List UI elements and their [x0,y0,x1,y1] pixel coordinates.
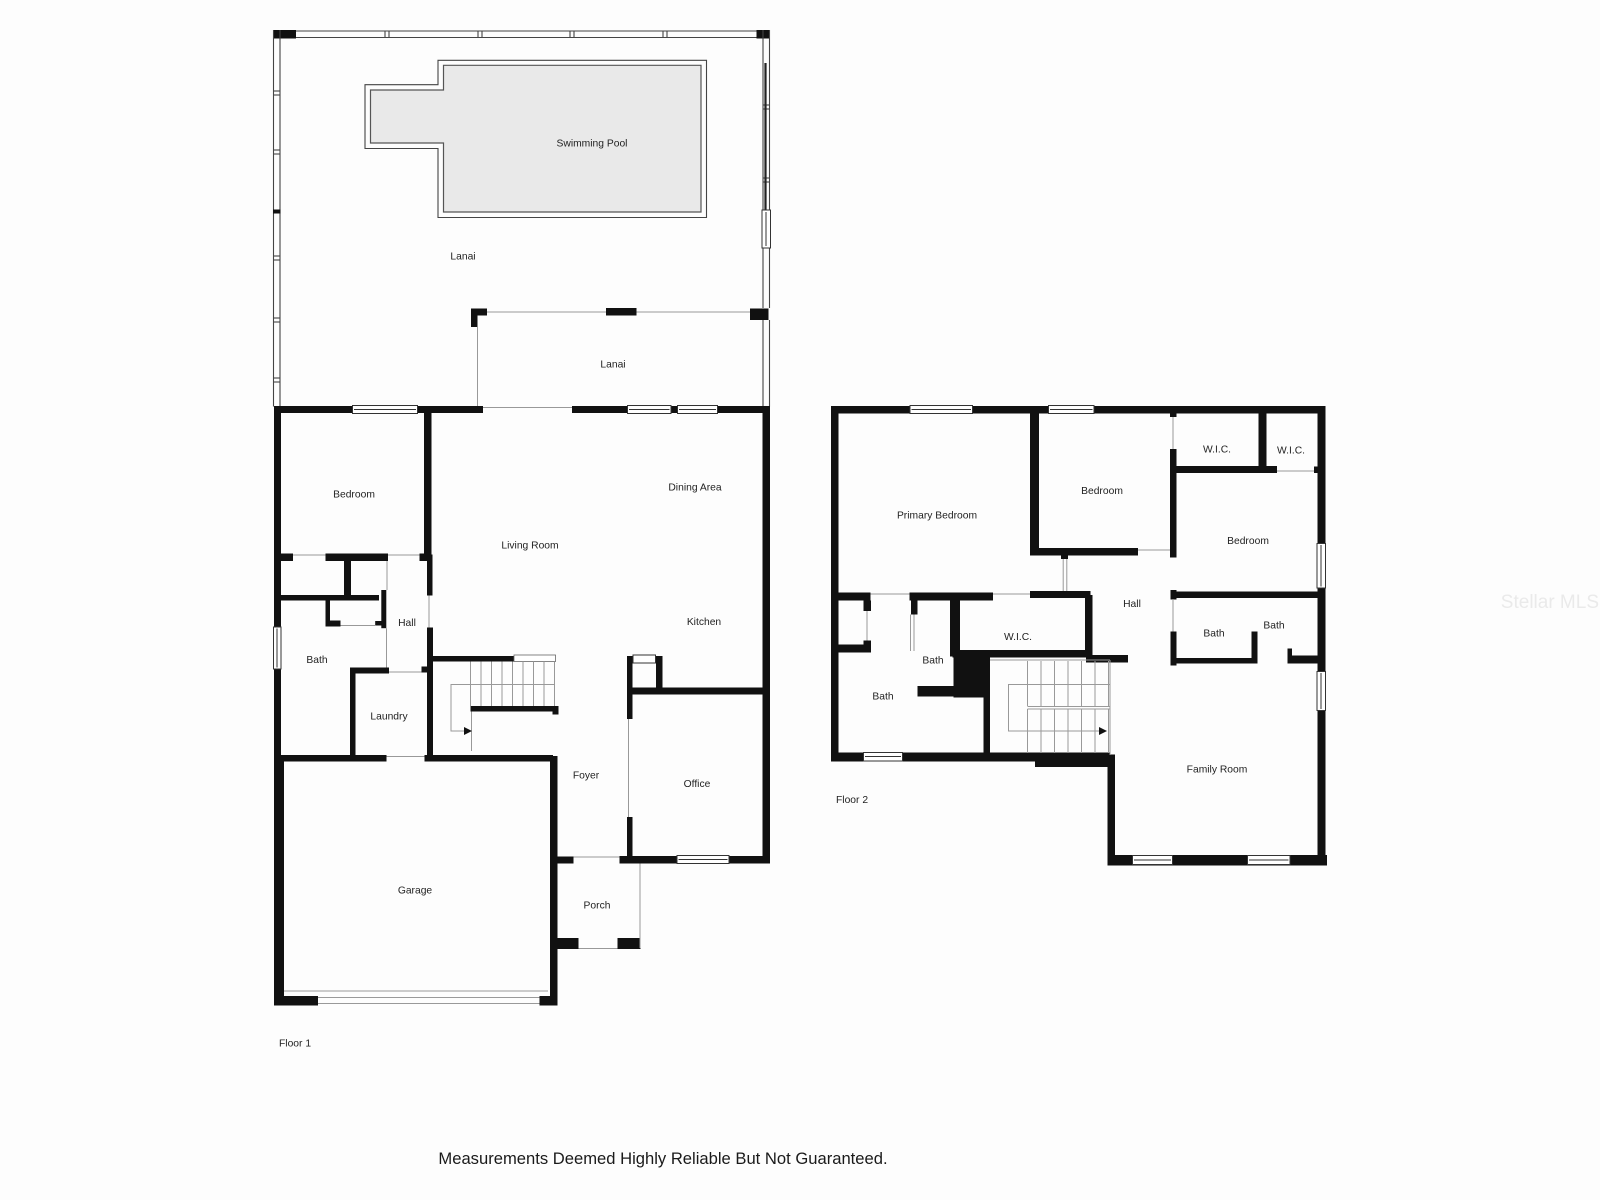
svg-text:Stellar MLS: Stellar MLS [1501,592,1599,613]
svg-text:Laundry: Laundry [370,712,408,723]
svg-text:Bath: Bath [922,656,943,667]
svg-text:Primary Bedroom: Primary Bedroom [897,511,977,522]
svg-text:Kitchen: Kitchen [687,617,722,628]
svg-text:Lanai: Lanai [600,360,625,371]
svg-text:Living Room: Living Room [501,541,558,552]
svg-text:Bath: Bath [872,692,893,703]
svg-text:Swimming Pool: Swimming Pool [557,139,628,150]
svg-text:Bath: Bath [306,655,327,666]
svg-text:Floor 2: Floor 2 [836,795,868,806]
svg-text:Garage: Garage [398,886,433,897]
svg-text:Bedroom: Bedroom [1227,536,1269,547]
svg-text:Measurements Deemed Highly Rel: Measurements Deemed Highly Reliable But … [438,1149,887,1168]
svg-text:Office: Office [684,779,711,790]
svg-text:W.I.C.: W.I.C. [1203,445,1231,456]
svg-text:Lanai: Lanai [450,252,475,263]
svg-text:Bedroom: Bedroom [1081,486,1123,497]
svg-text:Floor 1: Floor 1 [279,1039,311,1050]
svg-text:Hall: Hall [398,618,416,629]
svg-text:Foyer: Foyer [573,771,600,782]
svg-text:W.I.C.: W.I.C. [1277,446,1305,457]
svg-text:Bedroom: Bedroom [333,490,375,501]
svg-text:Hall: Hall [1123,599,1141,610]
svg-text:W.I.C.: W.I.C. [1004,632,1032,643]
svg-text:Family Room: Family Room [1187,765,1248,776]
svg-text:Bath: Bath [1203,629,1224,640]
svg-text:Dining Area: Dining Area [668,483,722,494]
svg-text:Bath: Bath [1263,621,1284,632]
svg-text:Porch: Porch [584,901,611,912]
